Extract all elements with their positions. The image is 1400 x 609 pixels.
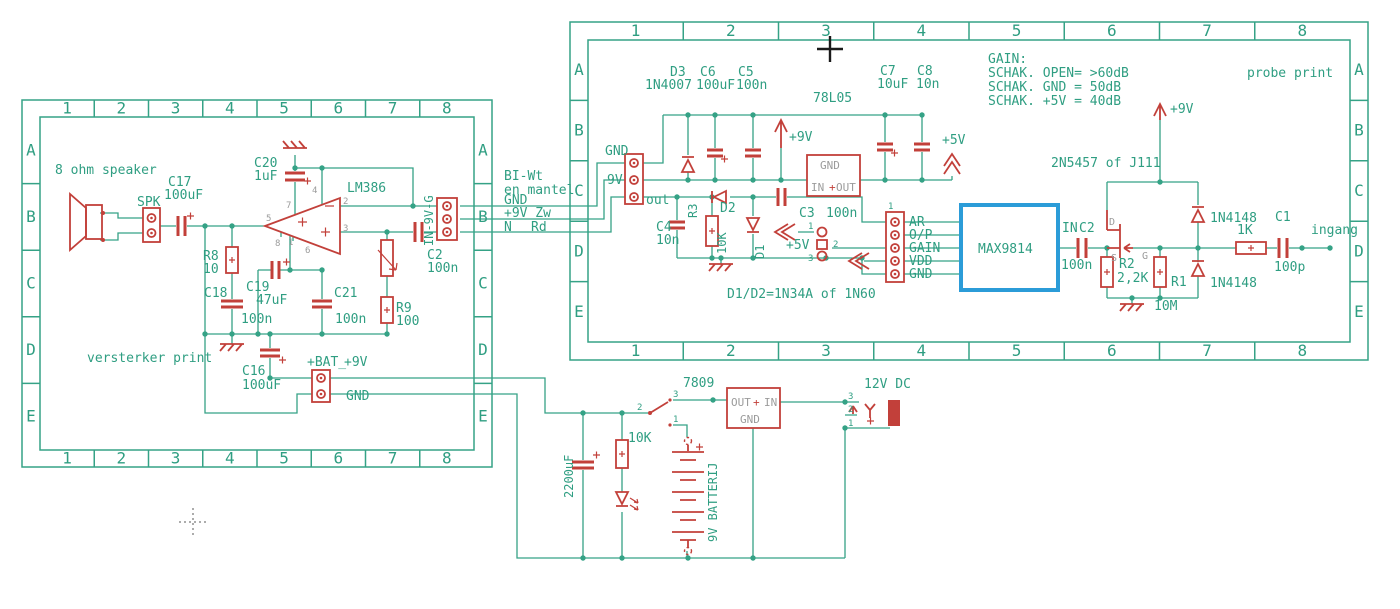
junction-dot [255, 331, 260, 336]
junction-dot [709, 255, 714, 260]
frame-label: 6 [334, 449, 344, 468]
c16-label: C16 [242, 364, 265, 379]
frame-label: B [478, 207, 488, 226]
frame-label: 1 [62, 449, 72, 468]
frame-label: 5 [1012, 341, 1022, 360]
max9814-label: MAX9814 [978, 242, 1033, 257]
frame-label: 7 [1202, 341, 1212, 360]
c2-value: 100n [427, 261, 458, 276]
junction-dot [1299, 245, 1304, 250]
schematic-canvas[interactable]: 1122334455667788AABBCCDDEE 1122334455667… [0, 0, 1400, 609]
junction-dot [685, 112, 690, 117]
junction-dot [267, 331, 272, 336]
psu-10k-resistor[interactable] [616, 440, 628, 468]
frame-label: C [574, 181, 584, 200]
frame-label: 1 [631, 21, 641, 40]
diode-note: D1/D2=1N34A of 1N60 [727, 287, 876, 302]
cable-label-n: N [504, 220, 512, 235]
junction-dot [1157, 245, 1162, 250]
header-pin-1: 1 [888, 202, 893, 212]
junction-dot [229, 223, 234, 228]
junction-dot [319, 267, 324, 272]
d1-label: D1 [753, 245, 767, 259]
frame-label: D [574, 241, 584, 260]
junction-dot [1157, 179, 1162, 184]
led[interactable] [616, 492, 638, 510]
gnd-connector-right[interactable] [625, 154, 643, 204]
jfet-drain: D [1109, 217, 1115, 228]
header-gnd: GND [909, 267, 933, 282]
junction-dot [384, 229, 389, 234]
jack-label: 12V DC [864, 377, 911, 392]
pin-label: 8 [275, 239, 280, 249]
9v-net-label: 9V [607, 173, 623, 188]
out-net-label: out [646, 193, 669, 208]
gnd-conn-label: GND [605, 144, 629, 159]
junction-dot [1129, 295, 1134, 300]
frame-label: 5 [279, 99, 289, 118]
ingang-label: ingang [1311, 223, 1358, 238]
frame-label: C [478, 274, 488, 293]
junction-dot [580, 555, 585, 560]
frame-label: C [1354, 181, 1364, 200]
c4-value: 10n [656, 233, 679, 248]
junction-dot [619, 410, 624, 415]
battery-label: 9V BATTERIJ [706, 463, 720, 542]
frame-label: 7 [1202, 21, 1212, 40]
r4-value: 1K [1237, 223, 1253, 238]
c20-value: 1uF [254, 169, 278, 184]
junction-dot [202, 223, 207, 228]
junction-dot [685, 555, 690, 560]
c17-value: 100uF [164, 188, 203, 203]
frame-label: 3 [171, 449, 181, 468]
c3-label: C3 [799, 206, 815, 221]
cable-label-1: BI-Wt [504, 169, 543, 184]
r1-value: 10M [1154, 299, 1178, 314]
frame-label: 4 [917, 341, 927, 360]
c1-label: C1 [1275, 210, 1291, 225]
lm386-label: LM386 [347, 181, 386, 196]
78l05-plus: + [829, 181, 836, 194]
frame-label: 1 [631, 341, 641, 360]
plus9v-label: +9V [789, 130, 813, 145]
junction-dot [710, 397, 715, 402]
jfet-gate: G [1142, 251, 1148, 262]
r1-label: R1 [1171, 275, 1187, 290]
in-net-label: IN [1062, 221, 1078, 236]
r3-label: R3 [686, 204, 700, 218]
frame-label: D [1354, 241, 1364, 260]
origin-cross [179, 508, 207, 536]
header-connector-5pin[interactable] [886, 212, 904, 282]
junction-dot [384, 331, 389, 336]
frame-label: 8 [1298, 21, 1308, 40]
d3-value: 1N4007 [645, 78, 692, 93]
pin-label: 5 [266, 214, 271, 224]
c1-value: 100p [1274, 260, 1305, 275]
frame-label: D [478, 340, 488, 359]
left-board-title: versterker print [87, 351, 212, 366]
eda-canvas[interactable]: 1122334455667788AABBCCDDEE 1122334455667… [0, 0, 1400, 609]
jumper-pin-1: 1 [808, 222, 813, 232]
junction-dot [882, 177, 887, 182]
junction-dot [1195, 245, 1200, 250]
frame-label: 2 [117, 99, 127, 118]
speaker-symbol[interactable] [70, 194, 105, 250]
gain-line-3: SCHAK. +5V = 40dB [988, 94, 1121, 109]
plus9v-arrow [775, 120, 787, 148]
bat-connector[interactable] [312, 370, 330, 402]
battery-9v[interactable] [672, 438, 704, 555]
78l05-in: IN [811, 181, 824, 194]
junction-dot [1327, 245, 1332, 250]
gain-title: GAIN: [988, 52, 1027, 67]
pin-label: 1 [288, 238, 293, 248]
d4-1n4148 [1192, 207, 1204, 222]
plus5v-label: +5V [942, 133, 966, 148]
frame-label: E [574, 302, 584, 321]
junction-dot [287, 267, 292, 272]
d2-label: D2 [720, 201, 736, 216]
jfet-source: S [1111, 253, 1117, 264]
frame-label: B [1354, 121, 1364, 140]
right-board-title: probe print [1247, 66, 1333, 81]
frame-label: 8 [442, 99, 452, 118]
r8-value: 10 [203, 262, 219, 277]
pin-label: 3 [343, 224, 348, 234]
c3-value: 100n [826, 206, 857, 221]
junction-dot [842, 425, 847, 430]
junction-dot [580, 410, 585, 415]
plus5v-chevron [944, 154, 960, 174]
frame-label: B [26, 207, 36, 226]
capacitors-right[interactable] [669, 144, 1287, 258]
7809-label: 7809 [683, 376, 714, 391]
psu-cap-label: 2200uF [562, 455, 576, 498]
r2-value: 2,2K [1117, 271, 1148, 286]
junction-dot [292, 165, 297, 170]
frame-label: 6 [334, 99, 344, 118]
trimpot [381, 240, 393, 276]
bat-gnd-label: GND [346, 389, 370, 404]
junction-dot [685, 177, 690, 182]
c5-value: 100n [736, 78, 767, 93]
d5-1n4148 [1192, 261, 1204, 276]
spk-label: SPK [137, 195, 161, 210]
c7-value: 10uF [877, 77, 908, 92]
7809-plus: + [753, 396, 760, 409]
junction-dot [750, 194, 755, 199]
c21-label: C21 [334, 286, 357, 301]
junction-dot [919, 112, 924, 117]
jumper-pin-3: 3 [808, 254, 813, 264]
frame-label: 2 [726, 21, 736, 40]
c16-value: 100uF [242, 378, 281, 393]
junction-dot [750, 555, 755, 560]
c18-value: 100n [241, 312, 272, 327]
frame-label: E [478, 407, 488, 426]
frame-label: 7 [388, 449, 398, 468]
r9-value: 100 [396, 314, 419, 329]
junction-dot [919, 177, 924, 182]
frame-label: 4 [917, 21, 927, 40]
pin-label: 6 [305, 246, 310, 256]
junction-dot [319, 331, 324, 336]
in9vg-label: IN-9V-G [422, 195, 436, 246]
78l05-gnd: GND [820, 159, 840, 172]
junction-dot [229, 331, 234, 336]
jack-pin-2: 2 [848, 405, 853, 415]
d5-value: 1N4148 [1210, 276, 1257, 291]
frame-label: A [1354, 60, 1364, 79]
frame-label: A [26, 140, 36, 159]
junction-dot [750, 177, 755, 182]
junction-dot [750, 112, 755, 117]
jack-pin-1: 1 [848, 419, 853, 429]
junction-dot [718, 255, 723, 260]
pin-label: 4 [312, 186, 317, 196]
c2r-label: C2 [1079, 221, 1095, 236]
frame-label: 3 [171, 99, 181, 118]
gain-line-2: SCHAK. GND = 50dB [988, 80, 1121, 95]
frame-label: 7 [388, 99, 398, 118]
plus5v-label2: +5V [786, 238, 810, 253]
frame-label: 5 [1012, 21, 1022, 40]
psu-10k-label: 10K [628, 431, 652, 446]
spk-connector[interactable] [143, 208, 160, 242]
c19-value: 47uF [256, 293, 287, 308]
frame-label: C [26, 274, 36, 293]
switch-pin-3: 3 [673, 390, 678, 400]
frame-label: E [26, 407, 36, 426]
plus9v-label2: +9V [1170, 102, 1194, 117]
plus9v-arrow2 [1154, 104, 1166, 120]
7809-gnd: GND [740, 413, 760, 426]
cable-label-9v: +9V Zw [504, 206, 551, 221]
power-switch[interactable] [648, 398, 672, 426]
frame-label: 4 [225, 449, 235, 468]
junction-dot [410, 203, 415, 208]
junction-dot [202, 331, 207, 336]
c8-value: 10n [916, 77, 939, 92]
speaker-label: 8 ohm speaker [55, 163, 157, 178]
78l05-out: OUT [836, 181, 856, 194]
pin-label: 7 [286, 201, 291, 211]
junction-dot [882, 112, 887, 117]
junction-dot [712, 112, 717, 117]
gain-line-1: SCHAK. OPEN= >60dB [988, 66, 1129, 81]
frame-label: 2 [726, 341, 736, 360]
bat-label: +BAT_ [307, 355, 346, 370]
frame-label: 6 [1107, 21, 1117, 40]
junction-dot [842, 399, 847, 404]
frame-label: A [574, 60, 584, 79]
frame-label: 2 [117, 449, 127, 468]
c18-label: C18 [204, 286, 227, 301]
psu-2200uf-cap[interactable] [572, 452, 600, 469]
switch-pin-1: 1 [673, 415, 678, 425]
bat-9v-label: +9V [344, 355, 368, 370]
frame-label: 4 [225, 99, 235, 118]
junction-dot [319, 165, 324, 170]
junction-dot [712, 177, 717, 182]
dc-jack[interactable] [849, 400, 900, 426]
frame-label: 1 [62, 99, 72, 118]
junction-dot [619, 555, 624, 560]
junction-dot [674, 194, 679, 199]
jumper-pin-2: 2 [833, 240, 838, 250]
r2-label: R2 [1119, 257, 1135, 272]
wire-net-psu [330, 378, 890, 558]
frame-label: A [478, 140, 488, 159]
7809-out: OUT [731, 396, 751, 409]
switch-pin-2: 2 [637, 403, 642, 413]
frame-label: 3 [821, 341, 831, 360]
frame-label: 5 [279, 449, 289, 468]
frame-label: 8 [1298, 341, 1308, 360]
frame-label: 6 [1107, 341, 1117, 360]
junction-dot [778, 177, 783, 182]
c6-value: 100uF [696, 78, 735, 93]
frame-label: D [26, 340, 36, 359]
r3-value: 10K [715, 232, 729, 254]
c21-value: 100n [335, 312, 366, 327]
frame-label: E [1354, 302, 1364, 321]
frame-label: B [574, 121, 584, 140]
cable-label-rd: Rd [531, 220, 547, 235]
d1-diode [747, 218, 759, 232]
78l05-label: 78L05 [813, 91, 852, 106]
c2r-value: 100n [1061, 258, 1092, 273]
jfet-label: 2N5457 of J111 [1051, 156, 1161, 171]
jack-pin-3: 3 [848, 392, 853, 402]
in9vg-connector[interactable] [437, 198, 457, 240]
7809-in: IN [764, 396, 777, 409]
frame-label: 8 [442, 449, 452, 468]
pin-label: 2 [343, 197, 348, 207]
